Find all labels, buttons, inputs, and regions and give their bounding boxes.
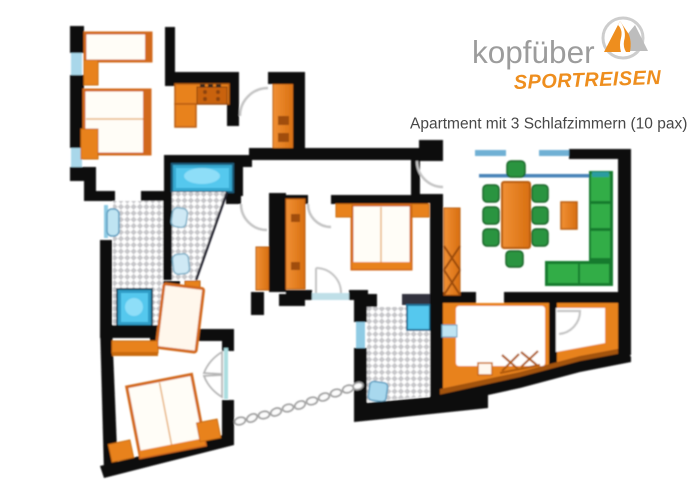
svg-text:Apartment mit 3 Schlafzimmern: Apartment mit 3 Schlafzimmern (10 pax) xyxy=(410,116,687,133)
svg-text:kopfüber: kopfüber xyxy=(472,34,595,70)
svg-text:SPORTREISEN: SPORTREISEN xyxy=(513,67,661,94)
